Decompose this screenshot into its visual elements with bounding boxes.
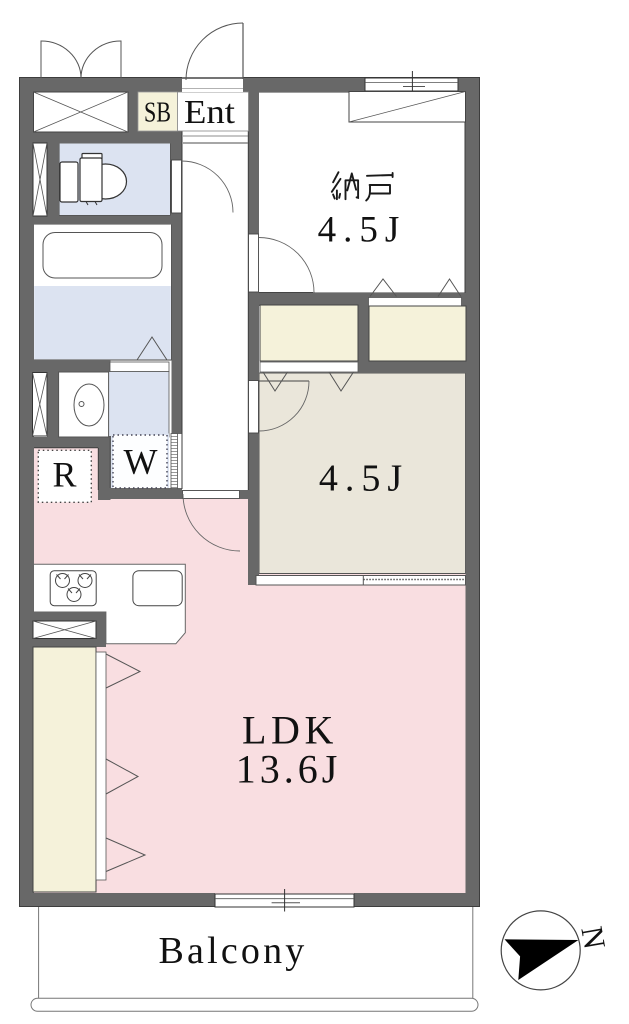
svg-text:Balcony: Balcony <box>158 930 307 972</box>
svg-text:Ent: Ent <box>184 94 236 131</box>
svg-text:W: W <box>124 442 158 482</box>
svg-text:R: R <box>52 455 76 495</box>
svg-text:4.5J: 4.5J <box>318 210 407 251</box>
svg-text:N: N <box>574 924 612 952</box>
svg-text:4.5J: 4.5J <box>319 458 409 500</box>
svg-text:13.6J: 13.6J <box>236 746 342 791</box>
svg-text:SB: SB <box>144 98 171 129</box>
